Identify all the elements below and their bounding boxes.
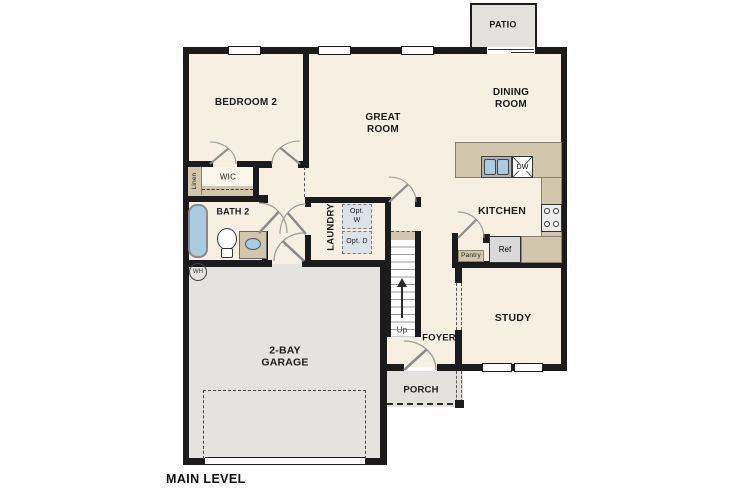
plan-title: MAIN LEVEL: [166, 472, 246, 486]
foyer-study-opening-2: [461, 283, 462, 330]
kitchen-label: KITCHEN: [478, 205, 526, 217]
floor-plan: PATIO Linen WIC: [0, 0, 750, 500]
patio-label: PATIO: [489, 20, 516, 31]
foyer-study-opening-1: [456, 283, 457, 330]
wall: [305, 235, 311, 267]
wall: [183, 47, 189, 465]
wall: [455, 330, 462, 371]
study-label: STUDY: [495, 312, 532, 324]
wic-label: WIC: [220, 172, 236, 181]
wall: [259, 195, 268, 203]
patio-slider-line-2: [511, 52, 534, 54]
kitchen-counter-lower: [521, 236, 562, 263]
sink-basin-right: [497, 159, 509, 175]
optional-dryer: Opt. D: [342, 231, 372, 254]
garage-door-opening: [205, 457, 365, 465]
patio-slider-line-1: [488, 49, 534, 51]
garage-entry-door-arc: [274, 233, 304, 261]
wall: [415, 231, 421, 337]
great-room-label: GREAT ROOM: [359, 112, 407, 136]
water-heater: WH: [189, 263, 207, 281]
wall: [455, 268, 462, 283]
wic-door-arc: [210, 142, 236, 164]
bathtub: [188, 204, 208, 258]
optional-washer: Opt. W: [342, 204, 372, 229]
opt-washer-label: Opt. W: [346, 208, 368, 225]
bedroom2-door-arc: [272, 141, 300, 164]
refrigerator-label: Ref: [499, 245, 511, 254]
toilet-bowl: [217, 228, 237, 250]
window: [482, 363, 512, 372]
stairs-arrow-head: [397, 278, 407, 287]
stove-burner: [553, 208, 559, 214]
window: [401, 46, 434, 55]
wall: [302, 260, 387, 267]
porch-label: PORCH: [403, 384, 438, 395]
bedroom2-label: BEDROOM 2: [215, 97, 277, 109]
stair-closet-door-arc: [389, 177, 416, 202]
dishwasher: DW: [512, 156, 533, 178]
stove-burner: [544, 208, 550, 214]
water-heater-label: WH: [193, 269, 203, 275]
bath2-label: BATH 2: [216, 207, 249, 218]
window: [228, 46, 261, 55]
stove-burner: [553, 221, 559, 227]
foyer-label: FOYER: [422, 332, 456, 343]
stove-burner: [544, 221, 550, 227]
wall: [183, 458, 205, 465]
window: [318, 46, 351, 55]
garage-door-outline: [203, 390, 366, 459]
wall: [305, 197, 391, 203]
sink-basin-left: [484, 159, 496, 175]
wic-dashed-line: [202, 189, 253, 190]
wall: [186, 195, 259, 202]
stairs-landing: [391, 231, 415, 240]
stairs-treads: [391, 240, 415, 337]
garage-label: 2-BAY GARAGE: [250, 345, 320, 370]
stairs-arrow-line: [401, 286, 403, 318]
laundry-door-arc: [280, 204, 306, 234]
opt-dryer-label: Opt. D: [346, 238, 368, 246]
linen-label: Linen: [191, 173, 199, 190]
porch-post: [455, 400, 464, 408]
refrigerator: Ref: [489, 236, 521, 263]
stairs-up-label: Up: [397, 325, 408, 334]
window: [514, 363, 543, 372]
porch-dashed-edge: [387, 403, 463, 405]
pantry-label: Pantry: [461, 252, 481, 260]
dishwasher-label: DW: [516, 164, 530, 171]
dining-room-label: DINING ROOM: [483, 87, 539, 111]
laundry-label: LAUNDRY: [325, 203, 336, 251]
toilet-base: [221, 248, 233, 258]
great-room-hall-opening: [304, 167, 305, 197]
front-door-arc: [404, 341, 436, 370]
vanity-sink: [245, 238, 261, 250]
wall: [303, 47, 309, 168]
wall: [385, 364, 404, 371]
